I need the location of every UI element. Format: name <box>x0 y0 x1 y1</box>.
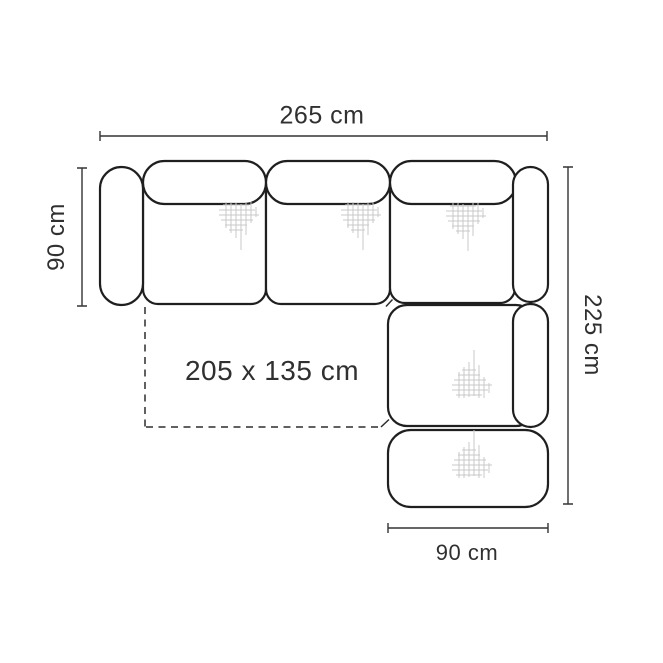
armrest-right-upper <box>513 167 548 302</box>
dimension-label-chaise-width: 90 cm <box>436 542 498 564</box>
armrest-right-chaise <box>513 304 548 427</box>
dim-line-bottom <box>388 523 548 533</box>
dim-line-top <box>100 131 547 141</box>
back-cushion-3 <box>390 161 516 204</box>
back-cushion-2 <box>266 161 390 204</box>
sofa-dimension-diagram: 265 cm 90 cm 225 cm 205 x 135 cm 90 cm <box>0 0 663 663</box>
armrest-left <box>100 167 143 305</box>
sleeping-area-corner-dash-top <box>386 300 393 307</box>
dimension-label-overall-width: 265 cm <box>280 104 365 129</box>
dim-line-left <box>77 168 87 306</box>
dimension-label-sleeping-area: 205 x 135 cm <box>185 357 359 385</box>
sleeping-area-corner-dash-bottom <box>381 420 389 428</box>
diagram-canvas <box>0 0 663 663</box>
back-cushion-1 <box>143 161 266 204</box>
sofa-outline <box>100 161 548 507</box>
chaise-end-section <box>388 430 548 507</box>
dimension-label-total-length: 225 cm <box>580 294 604 376</box>
dimension-label-seat-depth: 90 cm <box>45 203 69 271</box>
dim-line-right <box>563 167 573 504</box>
